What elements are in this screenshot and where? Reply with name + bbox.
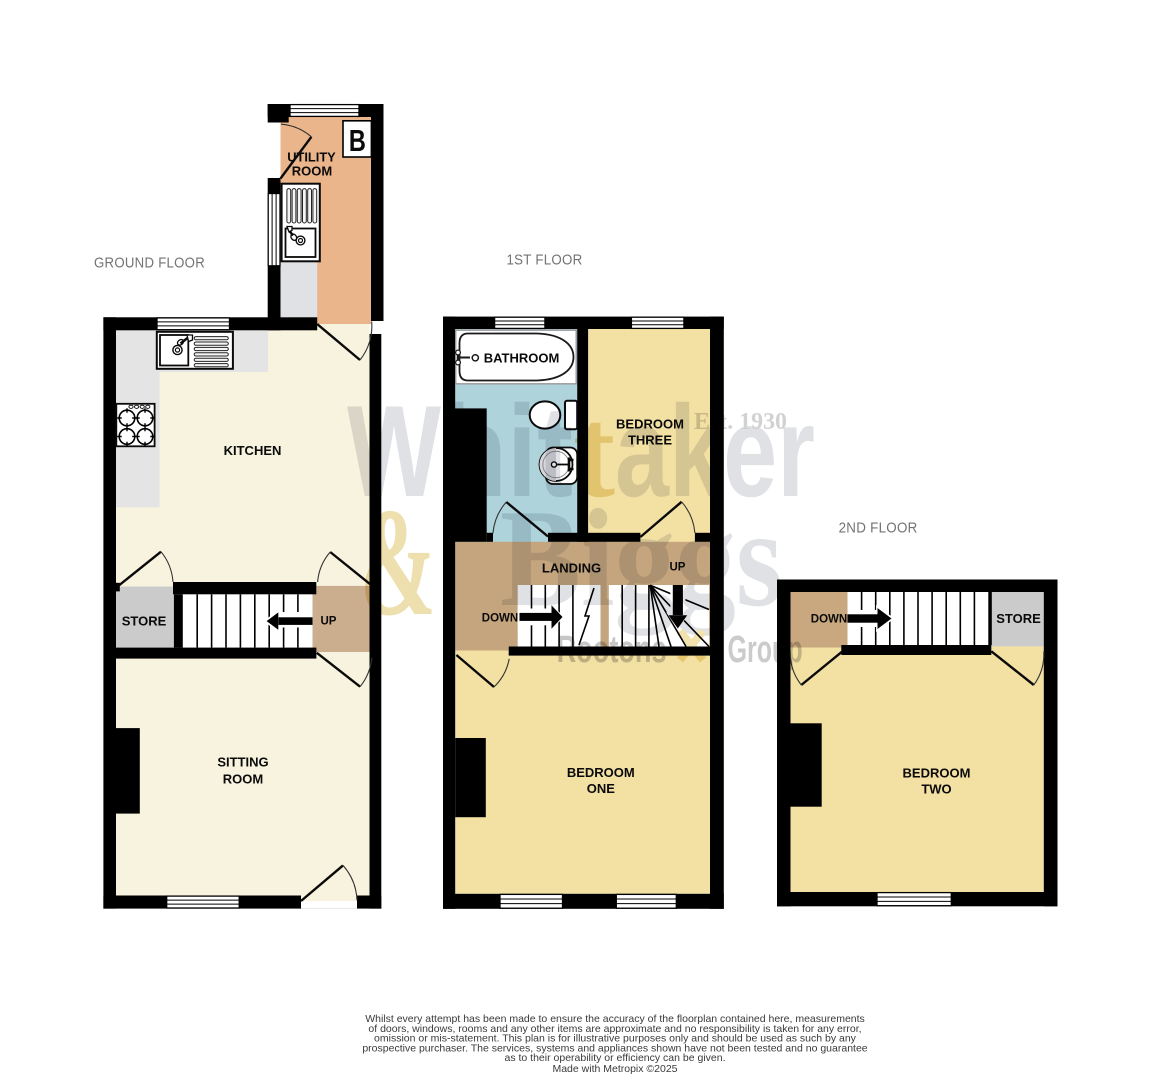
- svg-text:Biggs: Biggs: [500, 481, 783, 636]
- svg-text:STORE: STORE: [996, 611, 1041, 626]
- svg-text:t: t: [573, 381, 615, 525]
- svg-text:UTILITY: UTILITY: [287, 150, 336, 165]
- svg-text:ROOM: ROOM: [223, 772, 263, 787]
- svg-text:BEDROOM: BEDROOM: [567, 765, 635, 780]
- svg-text:BEDROOM: BEDROOM: [903, 766, 971, 781]
- svg-text:ONE: ONE: [587, 781, 616, 796]
- svg-text:UP: UP: [321, 616, 337, 628]
- svg-text:&: &: [360, 476, 436, 648]
- svg-text:TWO: TWO: [921, 782, 951, 797]
- svg-text:ROOM: ROOM: [292, 164, 332, 179]
- svg-text:STORE: STORE: [122, 614, 167, 629]
- svg-text:KITCHEN: KITCHEN: [224, 443, 282, 458]
- svg-text:2ND FLOOR: 2ND FLOOR: [839, 521, 918, 537]
- svg-text:Made with Metropix ©2025: Made with Metropix ©2025: [552, 1063, 677, 1075]
- svg-text:1ST FLOOR: 1ST FLOOR: [507, 253, 583, 269]
- svg-text:GROUND FLOOR: GROUND FLOOR: [94, 256, 205, 272]
- svg-text:DOWN: DOWN: [811, 614, 847, 626]
- svg-text:SITTING: SITTING: [217, 755, 268, 770]
- svg-text:Group: Group: [728, 629, 803, 671]
- svg-text:Est. 1930: Est. 1930: [694, 409, 787, 435]
- svg-text:BATHROOM: BATHROOM: [484, 351, 560, 366]
- svg-text:Rootons: Rootons: [557, 629, 667, 671]
- svg-text:B: B: [349, 123, 366, 158]
